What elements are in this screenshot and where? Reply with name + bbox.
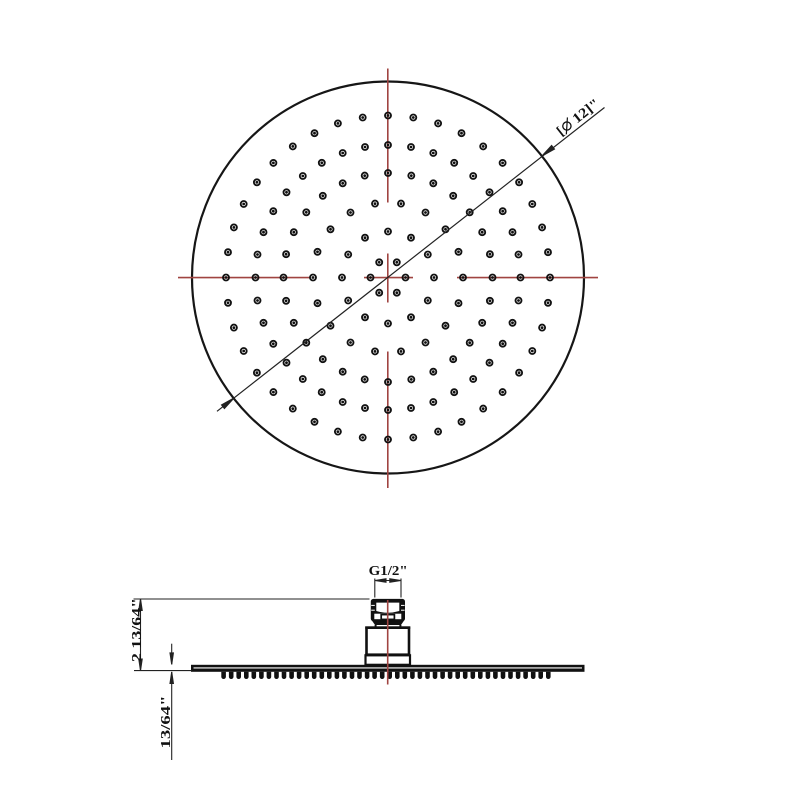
- svg-text:G1/2": G1/2": [369, 564, 408, 579]
- svg-text:13/64": 13/64": [159, 696, 174, 749]
- svg-text:2 13/64": 2 13/64": [130, 598, 145, 662]
- svg-text:[: [: [554, 124, 567, 139]
